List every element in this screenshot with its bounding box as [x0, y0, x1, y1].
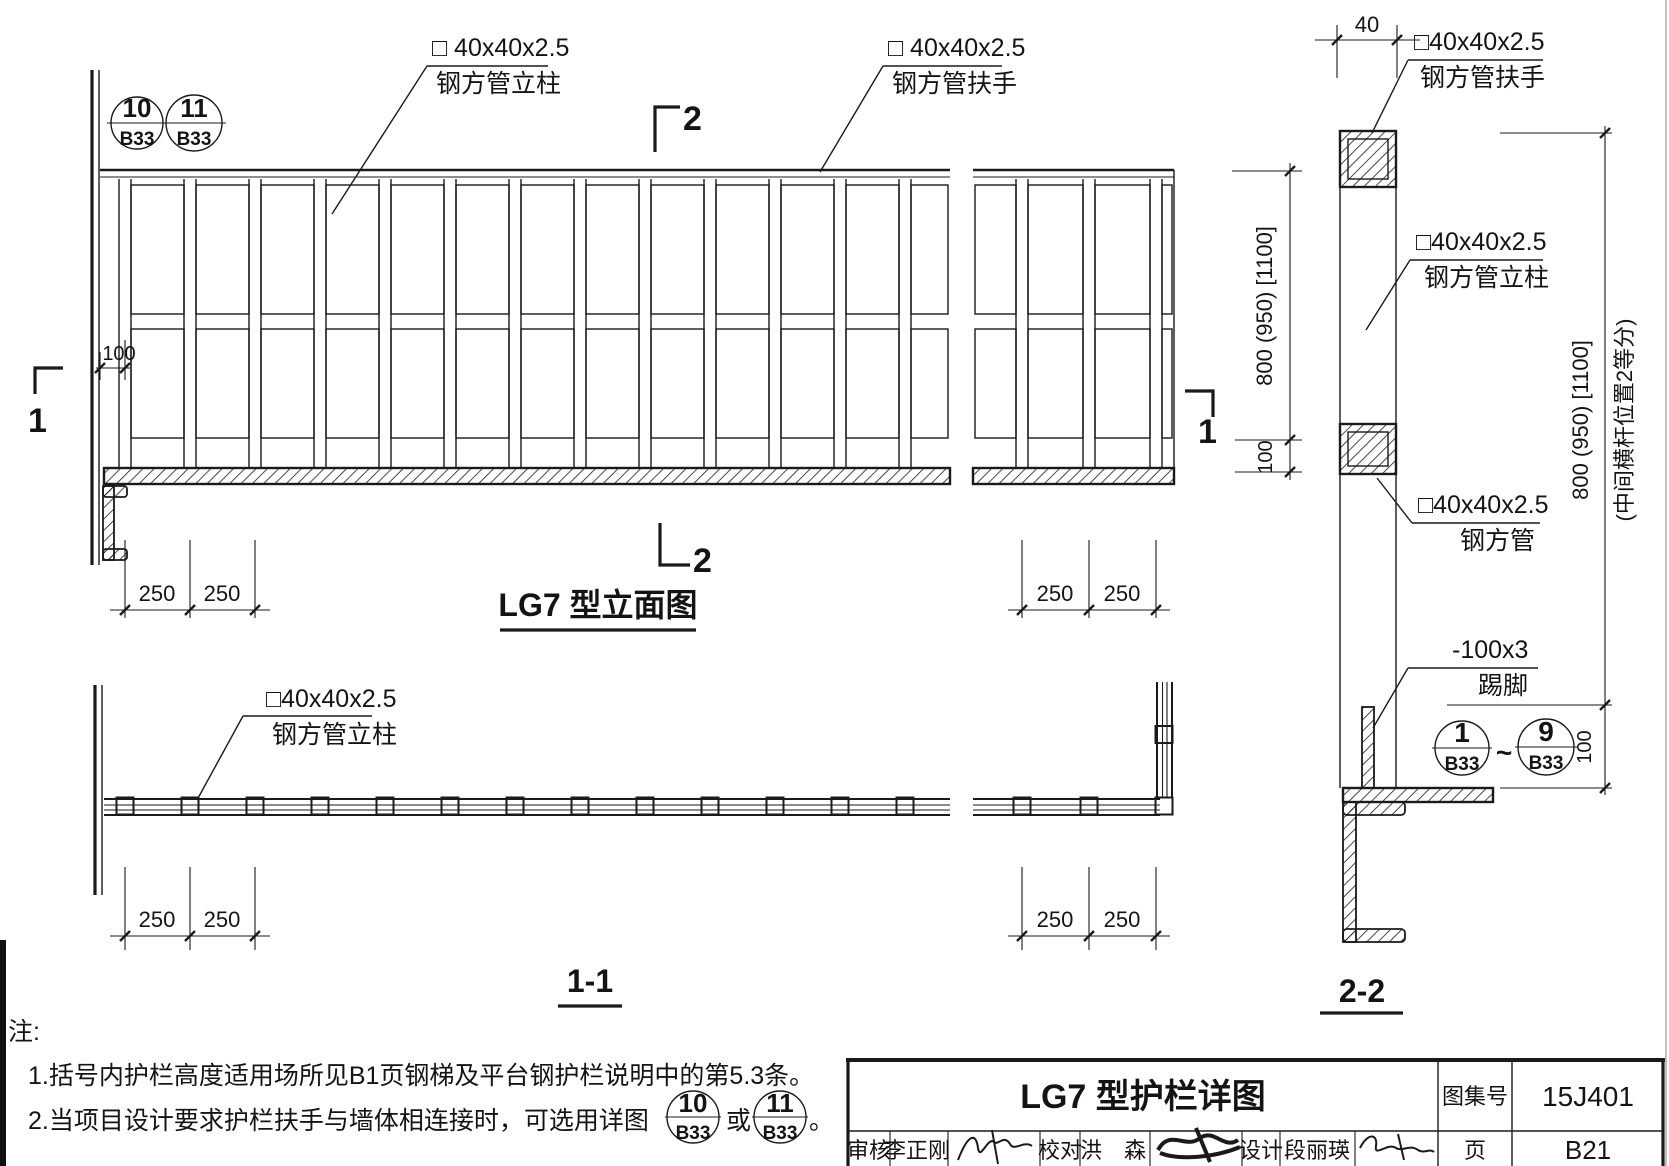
plan-post: [637, 798, 654, 815]
plan-post: [832, 798, 849, 815]
svg-text:250: 250: [1037, 907, 1074, 932]
plan-post: [442, 798, 459, 815]
svg-text:-100x3: -100x3: [1452, 636, 1528, 664]
svg-text:1-1: 1-1: [567, 963, 613, 999]
panel: [716, 185, 769, 314]
svg-text:(中间横杆位置2等分): (中间横杆位置2等分): [1612, 319, 1637, 522]
callout-size: □ 40x40x2.5: [432, 34, 569, 62]
svg-text:B33: B33: [1529, 753, 1564, 774]
notes: 注: 1.括号内护栏高度适用场所见B1页钢梯及平台钢护栏说明中的第5.3条。 2…: [8, 1018, 834, 1144]
post-callout: □ 40x40x2.5 钢方管立柱: [332, 34, 569, 214]
title-block: LG7 型护栏详图 图集号 15J401 审核 李正刚 校对 洪 森 设计 段丽…: [846, 1060, 1665, 1166]
panel: [261, 329, 314, 438]
plan-post: [1156, 726, 1173, 743]
svg-text:B33: B33: [763, 1123, 798, 1144]
panel: [456, 185, 509, 314]
svg-text:2: 2: [693, 542, 712, 580]
designer-label: 设计: [1239, 1138, 1283, 1163]
plan-post: [182, 798, 199, 815]
section-handrail-callout: □40x40x2.5 钢方管扶手: [1372, 28, 1545, 133]
plan-post-callout: □40x40x2.5 钢方管立柱: [197, 685, 397, 800]
atlas-number: 15J401: [1542, 1081, 1634, 1112]
kick-plate: [1362, 707, 1374, 788]
scan-edge: [0, 940, 6, 1166]
svg-text:2: 2: [683, 100, 702, 138]
svg-text:9: 9: [1538, 716, 1554, 747]
platform-floor-section: [1343, 788, 1493, 802]
checker-name: 洪 森: [1080, 1138, 1146, 1163]
svg-text:□40x40x2.5: □40x40x2.5: [1416, 228, 1546, 256]
svg-text:1: 1: [28, 402, 47, 440]
svg-text:2-2: 2-2: [1339, 973, 1385, 1009]
svg-text:1: 1: [1454, 717, 1470, 748]
designer-name: 段丽瑛: [1284, 1138, 1350, 1163]
section-midrail-callout: □40x40x2.5 钢方管: [1377, 478, 1548, 555]
plan-post: [1081, 798, 1098, 815]
svg-text:11: 11: [766, 1088, 794, 1118]
panel: [781, 329, 834, 438]
section-title: 2-2: [1320, 973, 1403, 1013]
svg-text:250: 250: [139, 907, 176, 932]
plan-dim-right: 250 250: [1008, 867, 1170, 950]
plan-post: [247, 798, 264, 815]
svg-text:800 (950) [1100]: 800 (950) [1100]: [1568, 340, 1593, 500]
callout-name: 钢方管立柱: [436, 70, 561, 98]
plan-posts: [117, 798, 1098, 815]
callout-size: □ 40x40x2.5: [888, 34, 1025, 62]
panel: [1028, 185, 1083, 314]
edge-channel-section: [1343, 802, 1405, 942]
svg-text:□40x40x2.5: □40x40x2.5: [266, 685, 396, 713]
panel: [391, 185, 444, 314]
svg-text:□40x40x2.5: □40x40x2.5: [1414, 28, 1544, 56]
svg-text:LG7 型立面图: LG7 型立面图: [498, 587, 697, 623]
svg-text:踢脚: 踢脚: [1478, 672, 1528, 700]
bubble-page: B33: [177, 129, 212, 150]
svg-text:250: 250: [1037, 581, 1074, 606]
panel: [1162, 185, 1172, 314]
panel: [651, 185, 704, 314]
handrail-callout: □ 40x40x2.5 钢方管扶手: [820, 34, 1025, 172]
svg-text:钢方管立柱: 钢方管立柱: [272, 721, 397, 749]
panel: [1028, 329, 1083, 438]
panel: [456, 329, 509, 438]
midrail-tube-section: [1340, 424, 1396, 474]
panel: [521, 185, 574, 314]
elevation-title: LG7 型立面图: [498, 587, 697, 630]
plan-post: [1014, 798, 1031, 815]
platform-floor: [973, 468, 1174, 484]
drawing-sheet: 10 B33 11 B33 □ 40x40x2.5 钢方管立柱 □ 40x40x…: [0, 0, 1669, 1166]
panel: [781, 185, 834, 314]
page-number: B21: [1565, 1135, 1611, 1165]
svg-text:250: 250: [204, 581, 241, 606]
svg-text:钢方管: 钢方管: [1460, 527, 1535, 555]
bubble-page: B33: [120, 129, 155, 150]
detail-range-bubbles: 1 B33 ~ 9 B33: [1432, 716, 1577, 775]
panel: [521, 329, 574, 438]
detail-bubble-11-B33: 11 B33: [164, 93, 226, 151]
tilde: ~: [1496, 737, 1512, 768]
signature-designer: [1360, 1134, 1434, 1160]
svg-text:250: 250: [204, 907, 241, 932]
plan-post: [117, 798, 134, 815]
page-label: 页: [1464, 1138, 1486, 1163]
plan-post: [377, 798, 394, 815]
svg-text:□40x40x2.5: □40x40x2.5: [1418, 491, 1548, 519]
section-marker-2-top: 2: [655, 100, 702, 152]
panel: [586, 185, 639, 314]
panel: [196, 185, 249, 314]
plan-post: [897, 798, 914, 815]
panel: [326, 185, 379, 314]
section-kick-callout: -100x3 踢脚: [1373, 636, 1538, 728]
dim-bays-left: 250 250: [110, 540, 270, 618]
panel: [391, 329, 444, 438]
handrail-tube-section: [1340, 131, 1396, 187]
panel: [911, 185, 948, 314]
plan-post: [767, 798, 784, 815]
note-1: 1.括号内护栏高度适用场所见B1页钢梯及平台钢护栏说明中的第5.3条。: [28, 1062, 814, 1090]
svg-text:800 (950) [1100]: 800 (950) [1100]: [1252, 226, 1277, 386]
edge-channel: [103, 486, 127, 560]
plan-post: [312, 798, 329, 815]
section-dim-height: 800 (950) [1100] (中间横杆位置2等分) 100: [1447, 126, 1637, 795]
panel: [846, 185, 899, 314]
plan-view: □40x40x2.5 钢方管立柱 250 250 250 250: [95, 682, 1173, 1006]
note-or: 或: [726, 1107, 751, 1135]
dim-bays-right: 250 250: [1008, 540, 1170, 618]
plan-dim-left: 250 250: [110, 867, 270, 950]
svg-text:250: 250: [139, 581, 176, 606]
svg-text:钢方管扶手: 钢方管扶手: [1420, 64, 1545, 92]
panel: [846, 329, 899, 438]
panel: [131, 185, 184, 314]
svg-text:钢方管立柱: 钢方管立柱: [1424, 264, 1549, 292]
drawing-canvas: 10 B33 11 B33 □ 40x40x2.5 钢方管立柱 □ 40x40x…: [0, 0, 1669, 1166]
notes-header: 注:: [8, 1018, 40, 1046]
callout-name: 钢方管扶手: [892, 70, 1017, 98]
svg-text:100: 100: [1574, 730, 1596, 763]
checker-label: 校对: [1038, 1138, 1082, 1163]
svg-text:B33: B33: [676, 1123, 711, 1144]
bubble-num: 11: [180, 93, 208, 123]
section-post-callout: □40x40x2.5 钢方管立柱: [1366, 228, 1549, 330]
svg-text:B33: B33: [1445, 754, 1480, 775]
panel: [1095, 185, 1150, 314]
plan-corner-post: [1156, 798, 1173, 815]
panel: [1095, 329, 1150, 438]
reviewer-name: 李正刚: [884, 1138, 950, 1163]
railing-panels: [119, 179, 1172, 468]
panel: [975, 185, 1016, 314]
section-marker-1-left: 1: [28, 368, 63, 440]
signature-checker: [1158, 1128, 1240, 1162]
bubble-num: 10: [123, 93, 152, 123]
note-bubble-10-B33: 10 B33: [665, 1088, 721, 1144]
note-bubble-11-B33: 11 B33: [752, 1088, 808, 1144]
plan-post: [702, 798, 719, 815]
section-marker-2-bottom: 2: [660, 523, 712, 580]
svg-text:40: 40: [1355, 12, 1379, 37]
svg-text:250: 250: [1104, 581, 1141, 606]
note-period: 。: [809, 1107, 834, 1135]
plan-post: [572, 798, 589, 815]
plan-post: [507, 798, 524, 815]
atlas-label: 图集号: [1442, 1084, 1508, 1109]
panel: [131, 329, 184, 438]
sheet-title: LG7 型护栏详图: [1020, 1078, 1266, 1116]
panel: [326, 329, 379, 438]
detail-bubble-10-B33: 10 B33: [107, 93, 167, 150]
panel: [1162, 329, 1172, 438]
plan-title: 1-1: [558, 963, 622, 1006]
panel: [975, 329, 1016, 438]
panel: [261, 185, 314, 314]
panel: [716, 329, 769, 438]
svg-text:10: 10: [679, 1088, 708, 1118]
section-marker-1-right: 1: [1185, 391, 1217, 451]
note-2: 2.当项目设计要求护栏扶手与墙体相连接时，可选用详图: [28, 1107, 649, 1135]
panel: [911, 329, 948, 438]
svg-text:100: 100: [102, 343, 135, 365]
dim-height-elevation: 800 (950) [1100] 100: [1232, 163, 1302, 480]
svg-text:100: 100: [1255, 440, 1277, 473]
panel: [586, 329, 639, 438]
svg-text:250: 250: [1104, 907, 1141, 932]
signature-reviewer: [958, 1130, 1032, 1164]
panel: [651, 329, 704, 438]
section-view: 40 □40x40x2.5 钢方管扶手: [1315, 12, 1637, 1013]
svg-text:1: 1: [1198, 413, 1217, 451]
elevation-view: 10 B33 11 B33 □ 40x40x2.5 钢方管立柱 □ 40x40x…: [28, 34, 1302, 630]
dim-wall-offset: 100: [95, 340, 136, 380]
platform-floor: [104, 468, 950, 484]
panel: [196, 329, 249, 438]
